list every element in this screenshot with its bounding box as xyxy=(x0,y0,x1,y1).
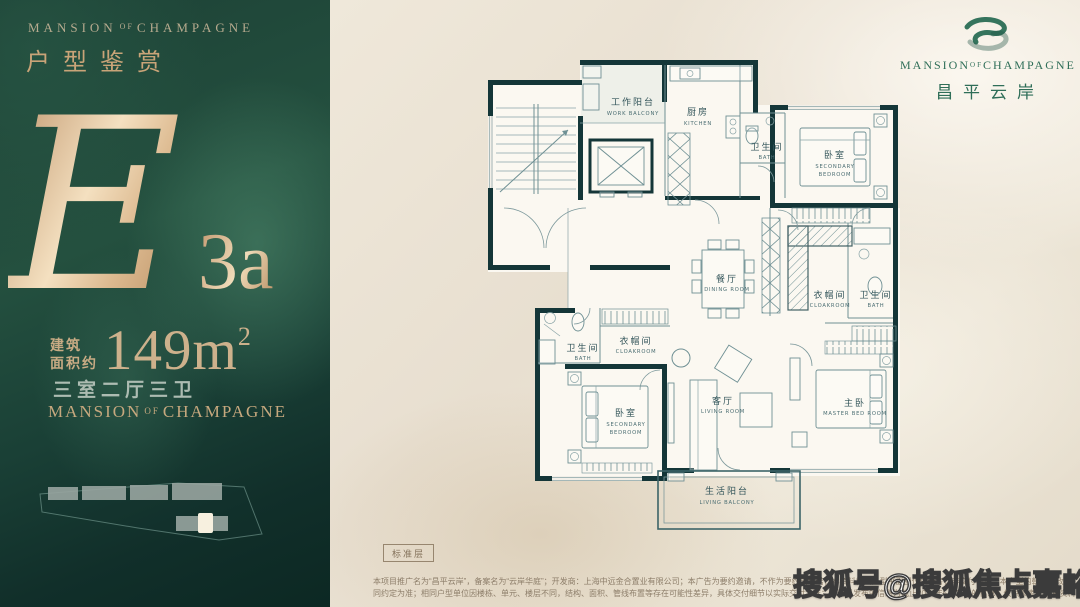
label-kitchen-zh: 厨房 xyxy=(687,106,709,118)
label-dining-zh: 餐厅 xyxy=(716,273,738,285)
label-work-balcony-zh: 工作阳台 xyxy=(611,96,655,108)
area-value: 149m2 xyxy=(104,322,252,379)
label-bedroom-bottom-en2: BEDROOM xyxy=(610,430,643,436)
champagne-knot-icon xyxy=(957,12,1013,56)
label-cloakroom-left-en: CLOAKROOM xyxy=(616,349,657,355)
brand-word: CHAMPAGNE xyxy=(163,402,287,421)
label-master-en: MASTER BED ROOM xyxy=(823,411,887,417)
brand-word: CHAMPAGNE xyxy=(983,58,1076,72)
label-cloakroom-right-zh: 衣帽间 xyxy=(813,289,846,301)
brand-word-of: OF xyxy=(117,22,137,31)
unit-letter: E xyxy=(8,88,182,326)
shaft-column xyxy=(668,133,690,205)
brand-word: MANSION xyxy=(48,402,141,421)
label-cloakroom-right-en: CLOAKROOM xyxy=(810,303,851,309)
label-bedroom-top-zh: 卧室 xyxy=(824,149,846,161)
label-living-en: LIVING ROOM xyxy=(701,409,745,415)
left-brand-panel: MANSIONOFCHAMPAGNE 户型鉴赏 E 3a 建筑 面积约 149m… xyxy=(0,0,330,607)
site-plan xyxy=(26,460,286,578)
area-number: 149m xyxy=(104,319,238,382)
label-living-balcony-en: LIVING BALCONY xyxy=(700,500,755,506)
poster-canvas: MANSIONOFCHAMPAGNE 户型鉴赏 E 3a 建筑 面积约 149m… xyxy=(0,0,1080,607)
area-info: 建筑 面积约 149m2 xyxy=(50,322,252,379)
area-prefix: 建筑 面积约 xyxy=(50,322,98,373)
area-prefix-line2: 面积约 xyxy=(50,356,98,374)
label-work-balcony-en: WORK BALCONY xyxy=(607,111,659,117)
area-superscript: 2 xyxy=(238,322,252,351)
brand-wordmark-top: MANSIONOFCHAMPAGNE xyxy=(28,20,254,36)
label-living-zh: 客厅 xyxy=(712,395,734,407)
brand-word: CHAMPAGNE xyxy=(137,20,254,35)
cloakroom-left-wardrobe xyxy=(602,309,668,324)
label-bath-top-en: BATH xyxy=(759,155,776,161)
area-prefix-line1: 建筑 xyxy=(50,338,98,356)
label-bath-right-zh: 卫生间 xyxy=(859,289,892,301)
brand-word-of: OF xyxy=(970,61,983,69)
sohu-watermark: 搜狐号@搜狐焦点嘉峪关站 xyxy=(793,560,1080,604)
label-bath-left-zh: 卫生间 xyxy=(566,342,599,354)
label-master-zh: 主卧 xyxy=(844,397,866,409)
label-cloakroom-left-zh: 衣帽间 xyxy=(619,335,652,347)
brand-wordmark-bottom: MANSIONOFCHAMPAGNE xyxy=(48,402,287,422)
label-bedroom-top-en1: SECONDARY xyxy=(815,164,854,170)
label-living-balcony-zh: 生活阳台 xyxy=(705,485,749,497)
label-bedroom-top-en2: BEDROOM xyxy=(819,172,852,178)
brand-word: MANSION xyxy=(28,20,117,35)
label-bedroom-bottom-en1: SECONDARY xyxy=(606,422,645,428)
label-kitchen-en: KITCHEN xyxy=(684,121,712,127)
label-bath-top-zh: 卫生间 xyxy=(750,141,783,153)
label-bedroom-bottom-zh: 卧室 xyxy=(615,407,637,419)
label-bath-left-en: BATH xyxy=(575,356,592,362)
label-bath-right-en: BATH xyxy=(868,303,885,309)
floor-tag: 标准层 xyxy=(383,544,434,562)
label-dining-en: DINING ROOM xyxy=(704,287,750,293)
brand-word-of: OF xyxy=(141,406,163,416)
unit-variant: 3a xyxy=(198,222,274,302)
site-highlighted-building xyxy=(198,513,213,533)
layout-description: 三室二厅三卫 xyxy=(53,375,197,402)
floorplan-drawing: 工作阳台 WORK BALCONY 厨房 KITCHEN 卫生间 BATH 卧室… xyxy=(440,58,950,545)
